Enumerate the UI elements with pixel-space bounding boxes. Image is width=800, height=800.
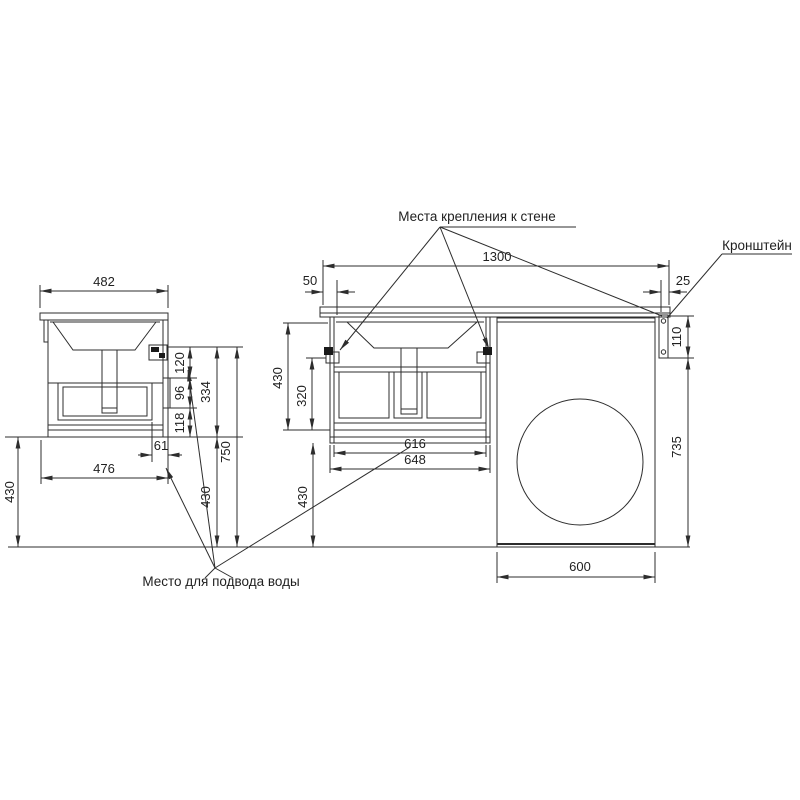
side-drain-pipe: [102, 350, 117, 413]
front-wall-bracket-right: [477, 347, 492, 363]
dim-50-label: 50: [303, 273, 317, 288]
dim-334-label: 334: [198, 381, 213, 403]
dim-front-left-gap: 50: [303, 273, 355, 315]
dim-25-label: 25: [676, 273, 690, 288]
dim-front-430b-label: 430: [295, 486, 310, 508]
dim-600-label: 600: [569, 559, 591, 574]
side-drawer: [48, 383, 163, 420]
dim-side-under-height: 430: [198, 437, 217, 547]
washing-machine-door: [517, 399, 643, 525]
drawing-page: { "labels": { "wall_mount": "Места крепл…: [0, 0, 800, 800]
dim-1300-label: 1300: [483, 249, 512, 264]
dim-482-label: 482: [93, 274, 115, 289]
dim-735-label: 735: [669, 436, 684, 458]
dim-side-left-height: 430: [2, 437, 168, 547]
dim-320-label: 320: [294, 385, 309, 407]
side-view-cabinet: [40, 313, 170, 462]
side-countertop: [40, 313, 168, 320]
note-wall-mount-label: Места крепления к стене: [398, 209, 556, 224]
dim-120-label: 120: [172, 352, 187, 374]
front-countertop: [320, 307, 670, 317]
dim-washer-width: 600: [497, 552, 655, 583]
side-cabinet-body: [44, 320, 163, 437]
side-wall-bracket: [149, 345, 167, 360]
dim-front-under-height: 430: [295, 443, 313, 547]
dim-front-430-label: 430: [270, 367, 285, 389]
front-view: [320, 307, 670, 547]
wall-bracket: [659, 315, 668, 358]
dim-96-label: 96: [172, 386, 187, 400]
technical-drawing: 482 430 120 96 118 334 430: [0, 0, 800, 800]
front-drain-pipe: [401, 348, 417, 414]
dim-side-bottom-width: 476: [41, 440, 168, 484]
note-water-supply: Место для подвода воды: [142, 370, 410, 589]
washing-machine: [497, 318, 655, 547]
note-water-supply-label: Место для подвода воды: [142, 574, 299, 589]
note-bracket-label: Кронштейн: [722, 238, 792, 253]
front-cabinet-body: [330, 317, 490, 443]
dim-front-cabinet-height: 430: [270, 323, 330, 430]
front-drawer: [334, 367, 486, 423]
dim-110-label: 110: [669, 327, 684, 348]
side-pipe-niche: [163, 378, 170, 408]
dim-750-label: 750: [218, 441, 233, 463]
dim-front-inner-height: 320: [294, 358, 326, 430]
dim-front-total-width: 1300: [323, 249, 669, 305]
dim-476-label: 476: [93, 461, 115, 476]
dim-648-label: 648: [404, 452, 426, 467]
dim-side-334: 334: [198, 347, 217, 437]
front-wall-bracket-left: [324, 347, 339, 363]
dim-front-right-gap: 25: [643, 273, 690, 312]
note-wall-mount: Места крепления к стене: [340, 209, 662, 350]
front-sink-basin: [336, 322, 484, 348]
dim-61-label: 61: [154, 438, 168, 453]
side-sink-basin: [50, 322, 160, 350]
dim-side-750: 750: [218, 347, 237, 547]
dim-118-label: 118: [172, 413, 187, 434]
dim-bracket-height: 110: [668, 316, 694, 358]
dim-side-top-width: 482: [40, 274, 168, 308]
dim-430-left-label: 430: [2, 481, 17, 503]
dim-bracket-to-floor: 735: [669, 358, 688, 547]
